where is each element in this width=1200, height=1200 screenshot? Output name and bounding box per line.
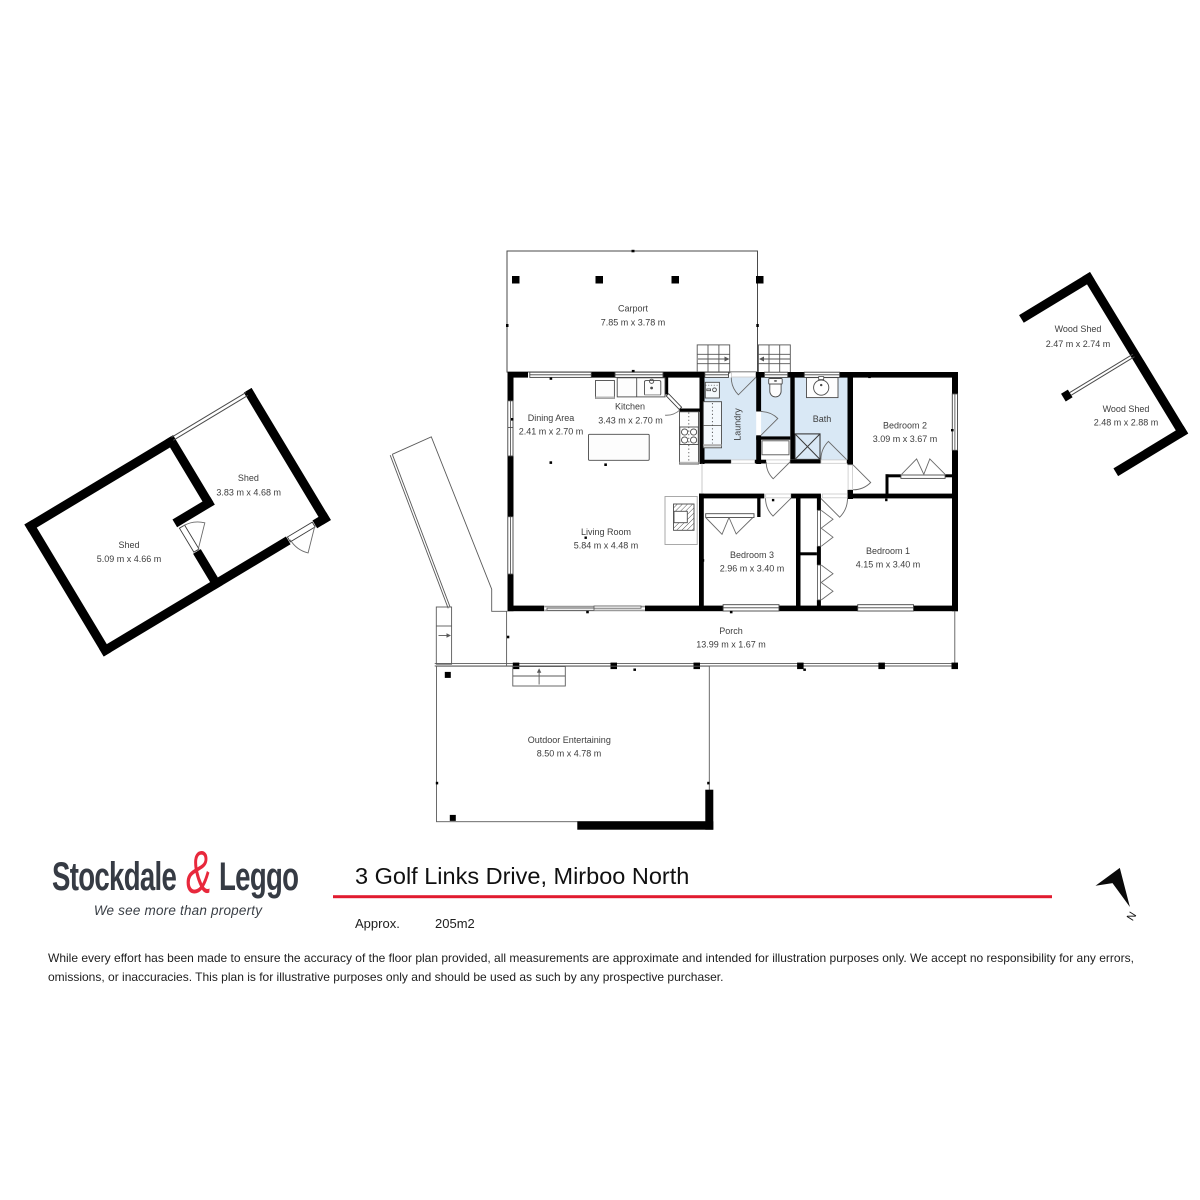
svg-text:3.09 m x 3.67 m: 3.09 m x 3.67 m [873,434,938,444]
svg-text:Porch: Porch [719,626,743,636]
svg-text:5.09 m x 4.66 m: 5.09 m x 4.66 m [97,554,162,564]
svg-text:8.50 m x 4.78 m: 8.50 m x 4.78 m [537,749,602,759]
svg-text:3.43 m x 2.70 m: 3.43 m x 2.70 m [598,416,663,426]
svg-text:We see more than property: We see more than property [94,903,263,918]
svg-text:2.41 m x 2.70 m: 2.41 m x 2.70 m [519,427,584,437]
svg-text:Dining Area: Dining Area [528,413,575,423]
svg-text:7.85 m x 3.78 m: 7.85 m x 3.78 m [601,318,666,328]
svg-text:Bath: Bath [813,414,832,424]
svg-text:Leggo: Leggo [219,855,298,899]
svg-text:4.15 m x 3.40 m: 4.15 m x 3.40 m [856,560,921,570]
svg-text:Kitchen: Kitchen [615,402,645,412]
svg-text:Bedroom 2: Bedroom 2 [883,421,927,431]
svg-text:omissions, or inaccuracies. Th: omissions, or inaccuracies. This plan is… [48,970,723,984]
svg-text:Outdoor Entertaining: Outdoor Entertaining [528,735,611,745]
svg-text:Wood Shed: Wood Shed [1055,324,1102,334]
svg-text:Shed: Shed [238,473,259,483]
svg-text:2.96 m x 3.40 m: 2.96 m x 3.40 m [720,564,785,574]
svg-text:3 Golf Links Drive, Mirboo Nor: 3 Golf Links Drive, Mirboo North [355,863,689,889]
svg-text:205m2: 205m2 [435,916,475,931]
svg-text:Approx.: Approx. [355,916,400,931]
svg-text:Carport: Carport [618,304,649,314]
svg-text:2.47 m x 2.74 m: 2.47 m x 2.74 m [1046,339,1111,349]
svg-text:Laundry: Laundry [733,408,743,441]
svg-text:Shed: Shed [118,540,139,550]
svg-text:Wood Shed: Wood Shed [1103,404,1150,414]
svg-text:&: & [186,838,212,906]
svg-text:13.99 m x 1.67 m: 13.99 m x 1.67 m [696,640,766,650]
svg-text:2.48 m x 2.88 m: 2.48 m x 2.88 m [1094,418,1159,428]
svg-text:Bedroom 1: Bedroom 1 [866,546,910,556]
svg-text:Living Room: Living Room [581,527,631,537]
svg-text:Stockdale: Stockdale [52,855,176,899]
svg-text:While every effort has been ma: While every effort has been made to ensu… [48,951,1134,965]
svg-text:5.84 m x 4.48 m: 5.84 m x 4.48 m [574,541,639,551]
svg-text:3.83 m x 4.68 m: 3.83 m x 4.68 m [216,488,281,498]
svg-text:Bedroom 3: Bedroom 3 [730,550,774,560]
